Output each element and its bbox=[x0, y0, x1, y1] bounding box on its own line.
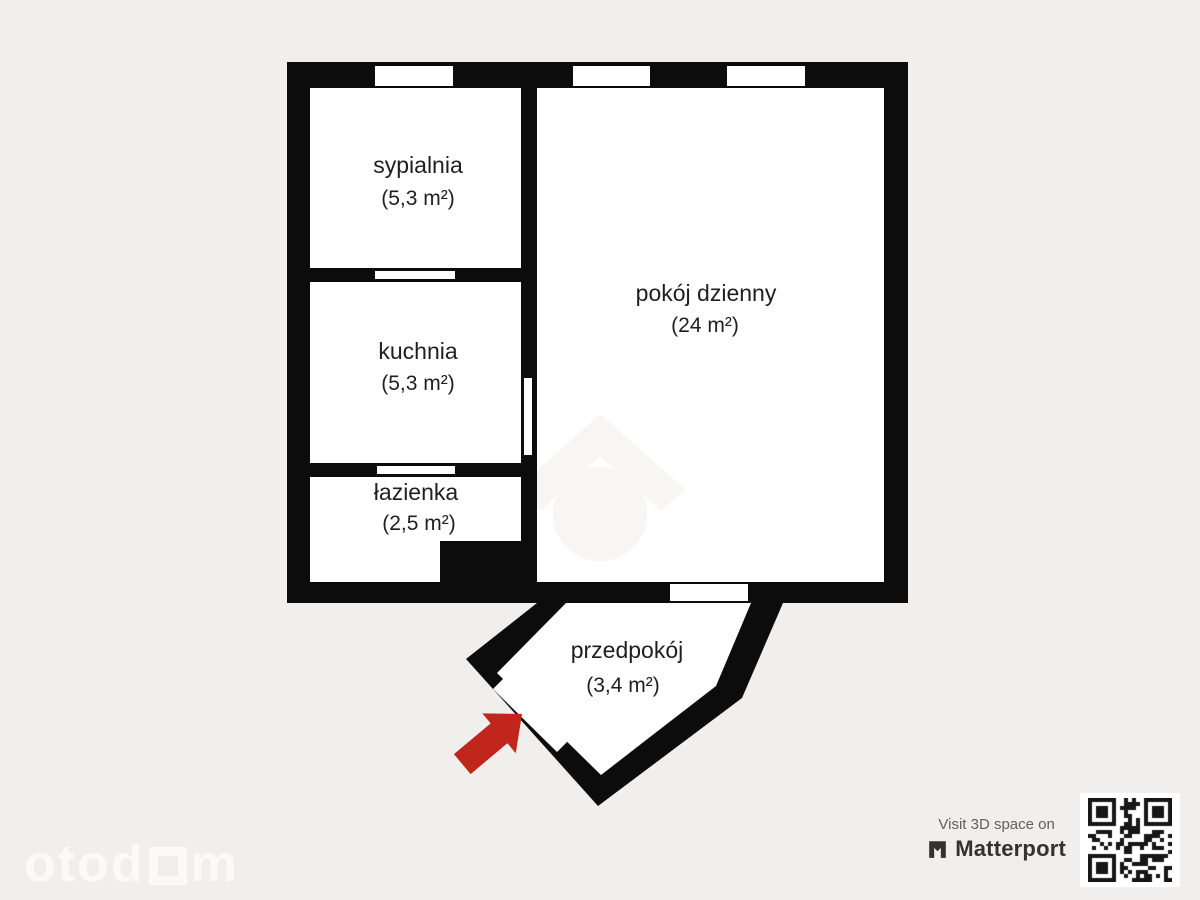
label-przedpokoj: przedpokój bbox=[571, 637, 684, 663]
otodom-watermark-text-left: otod bbox=[24, 838, 145, 890]
area-kuchnia: (5,3 m²) bbox=[381, 372, 455, 395]
window-opening-3 bbox=[727, 66, 805, 86]
area-sypialnia: (5,3 m²) bbox=[381, 187, 455, 210]
door-kuchnia-pokoj bbox=[524, 378, 532, 455]
window-opening-1 bbox=[375, 66, 453, 86]
qr-code-tile bbox=[1080, 793, 1180, 887]
floorplan-image: sypialnia (5,3 m²) kuchnia (5,3 m²) łazi… bbox=[0, 0, 1200, 900]
matterport-logo-icon bbox=[927, 839, 948, 860]
matterport-badge: Visit 3D space on Matterport bbox=[927, 816, 1066, 862]
matterport-wordmark: Matterport bbox=[955, 836, 1066, 862]
label-pokoj-dzienny: pokój dzienny bbox=[636, 280, 777, 306]
matterport-logo-row: Matterport bbox=[927, 836, 1066, 862]
label-kuchnia: kuchnia bbox=[378, 338, 457, 364]
label-lazienka: łazienka bbox=[374, 479, 459, 505]
door-pokoj-przedpokoj bbox=[670, 584, 748, 601]
otodom-watermark-text-right: m bbox=[191, 838, 239, 890]
matterport-tagline: Visit 3D space on bbox=[938, 816, 1054, 833]
floorplan-svg: sypialnia (5,3 m²) kuchnia (5,3 m²) łazi… bbox=[0, 0, 1200, 900]
door-sypialnia-kuchnia bbox=[375, 271, 455, 279]
otodom-square-icon bbox=[149, 847, 187, 885]
area-lazienka: (2,5 m²) bbox=[382, 512, 456, 535]
door-kuchnia-lazienka bbox=[377, 466, 455, 474]
qr-code-canvas bbox=[1088, 798, 1172, 882]
area-pokoj-dzienny: (24 m²) bbox=[671, 314, 739, 337]
area-przedpokoj: (3,4 m²) bbox=[586, 674, 660, 697]
window-opening-2 bbox=[573, 66, 650, 86]
label-sypialnia: sypialnia bbox=[373, 152, 463, 178]
room-sypialnia-floor bbox=[310, 88, 521, 268]
otodom-watermark: otodm bbox=[24, 838, 239, 890]
